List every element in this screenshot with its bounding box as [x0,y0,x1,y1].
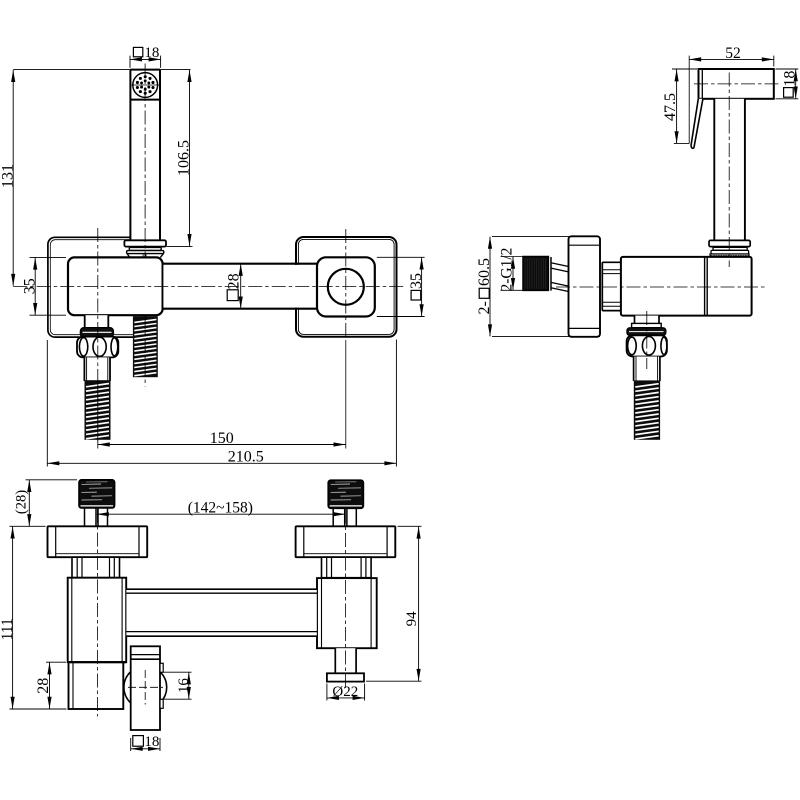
svg-text:Ø22: Ø22 [332,684,358,700]
svg-text:60.5: 60.5 [476,258,493,286]
svg-text:111: 111 [0,618,16,640]
svg-text:18: 18 [144,734,159,750]
svg-text:106.5: 106.5 [176,140,193,176]
svg-text:(28): (28) [14,490,30,514]
svg-text:18: 18 [781,71,798,87]
svg-text:16: 16 [176,678,192,694]
svg-text:28: 28 [226,273,243,289]
svg-text:2-G1/2: 2-G1/2 [498,248,515,292]
svg-text:28: 28 [35,678,52,694]
svg-text:18: 18 [144,45,159,61]
svg-text:(142~158): (142~158) [188,500,253,517]
svg-text:47.5: 47.5 [662,93,679,121]
svg-text:94: 94 [404,611,420,627]
svg-text:52: 52 [725,45,741,62]
svg-text:131: 131 [0,164,16,188]
svg-text:35: 35 [21,278,38,294]
svg-text:150: 150 [210,430,234,447]
svg-text:2-: 2- [476,301,493,314]
svg-text:210.5: 210.5 [228,449,264,466]
svg-text:35: 35 [408,273,425,289]
